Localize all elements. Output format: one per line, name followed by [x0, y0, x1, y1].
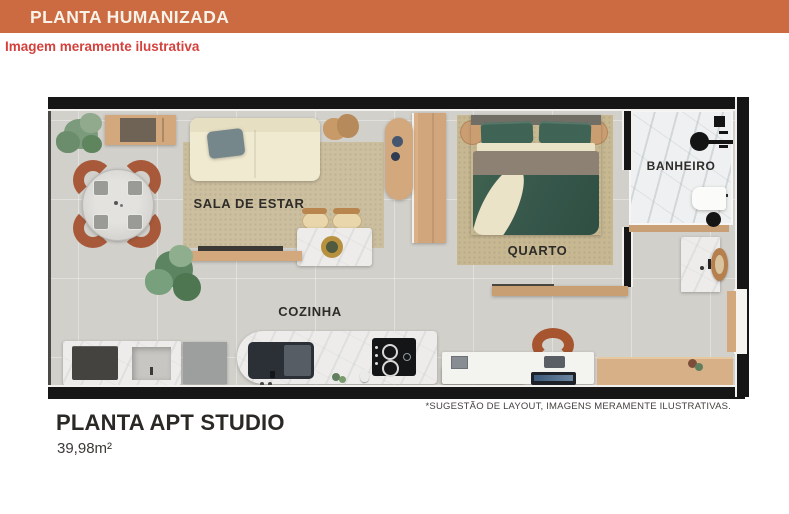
kitchen-counter: [237, 331, 437, 384]
bench-decor: [695, 363, 703, 371]
bed-fold: [473, 151, 599, 177]
plant-leaf: [82, 135, 102, 153]
table-centerpiece: [120, 204, 123, 207]
desk-phone: [451, 356, 468, 369]
plant-leaf: [337, 114, 359, 138]
sideboard-divider: [162, 118, 164, 142]
bed-duvet: [473, 175, 599, 235]
room-label-sala: SALA DE ESTAR: [188, 196, 310, 211]
media-console-bar: [198, 246, 283, 251]
shower-niche: [714, 116, 725, 127]
bed-pillow: [539, 121, 592, 145]
sink-faucet: [270, 371, 275, 378]
vanity-drain: [700, 266, 704, 270]
bed: [471, 115, 601, 235]
sofa: [190, 118, 320, 181]
dining-table: [82, 169, 154, 241]
table-centerpiece: [114, 201, 118, 205]
vanity-basin: [711, 248, 728, 281]
laptop-screen: [534, 375, 573, 381]
laundry-counter: [63, 341, 181, 385]
laundry-sink: [132, 347, 171, 380]
plant-leaf: [145, 269, 173, 295]
burner: [382, 344, 398, 360]
utility-cabinet: [183, 342, 227, 384]
bench: [597, 357, 733, 385]
stool-back: [333, 208, 360, 214]
sink-board: [284, 345, 311, 376]
place-setting: [93, 180, 109, 196]
burner: [382, 360, 399, 377]
plan-name: PLANTA APT STUDIO: [56, 410, 285, 436]
herb-decor: [339, 376, 346, 383]
bathroom-wall-upper: [622, 110, 633, 170]
cooktop-dial: [403, 353, 411, 361]
decor-vase: [392, 136, 403, 147]
room-label-banheiro: BANHEIRO: [636, 159, 726, 173]
sofa-seam: [254, 130, 256, 178]
plant-leaf: [169, 245, 193, 267]
plant-leaf: [80, 113, 102, 133]
shower-valve: [719, 131, 728, 134]
basin-inner: [715, 255, 724, 274]
sofa-pillow: [206, 128, 245, 159]
door-sill: [727, 291, 736, 352]
place-setting: [127, 214, 143, 230]
page-title: PLANTA HUMANIZADA: [30, 0, 229, 33]
room-label-cozinha: COZINHA: [266, 304, 354, 319]
jar-decor: [360, 370, 369, 382]
decor-vase: [391, 152, 400, 161]
cooktop: [372, 338, 416, 376]
island-counter: [297, 228, 372, 266]
wardrobe: [412, 113, 446, 243]
bed-blanket-fold: [473, 175, 534, 235]
floor-drain: [706, 212, 721, 227]
desk: [442, 352, 594, 384]
cooktop-knob: [375, 354, 378, 357]
wardrobe-seam: [432, 113, 434, 243]
plant-leaf: [56, 131, 80, 153]
bathroom-wall-lower: [622, 227, 633, 287]
notice-text: Imagem meramente ilustrativa: [5, 39, 199, 54]
sideboard-panel: [120, 118, 156, 142]
wall-top: [48, 97, 745, 111]
decor-bowl: [321, 236, 343, 258]
wall-shelf: [492, 286, 628, 296]
cooktop-knob: [375, 346, 378, 349]
console-table: [385, 118, 413, 200]
plan-area: 39,98m²: [57, 440, 112, 457]
window-wall-left: [48, 98, 51, 396]
wall-bottom: [48, 385, 745, 399]
laptop: [531, 372, 576, 385]
washing-machine: [72, 346, 118, 380]
vanity-faucet: [708, 259, 711, 269]
place-setting: [93, 214, 109, 230]
plant-center: [145, 245, 203, 305]
shower-valve: [719, 145, 728, 148]
bed-pillow: [481, 121, 534, 145]
plant-top-left: [56, 113, 106, 157]
toilet: [692, 187, 726, 210]
kitchen-sink: [248, 342, 314, 379]
header-bar: PLANTA HUMANIZADA: [0, 0, 789, 33]
plant-leaf: [173, 273, 201, 301]
cooktop-knob: [375, 362, 378, 365]
laundry-faucet: [150, 367, 153, 375]
stool-back: [302, 208, 327, 214]
disclaimer-text: *SUGESTÃO DE LAYOUT, IMAGENS MERAMENTE I…: [426, 401, 731, 412]
sideboard: [105, 115, 176, 145]
desk-tablet: [544, 356, 565, 368]
room-label-quarto: QUARTO: [495, 243, 580, 258]
shower-arm: [707, 140, 733, 144]
page: PLANTA HUMANIZADA Imagem meramente ilust…: [0, 0, 789, 514]
floorplan-canvas: SALA DE ESTAR: [40, 97, 747, 397]
hanging-plant: [323, 114, 360, 142]
place-setting: [127, 180, 143, 196]
